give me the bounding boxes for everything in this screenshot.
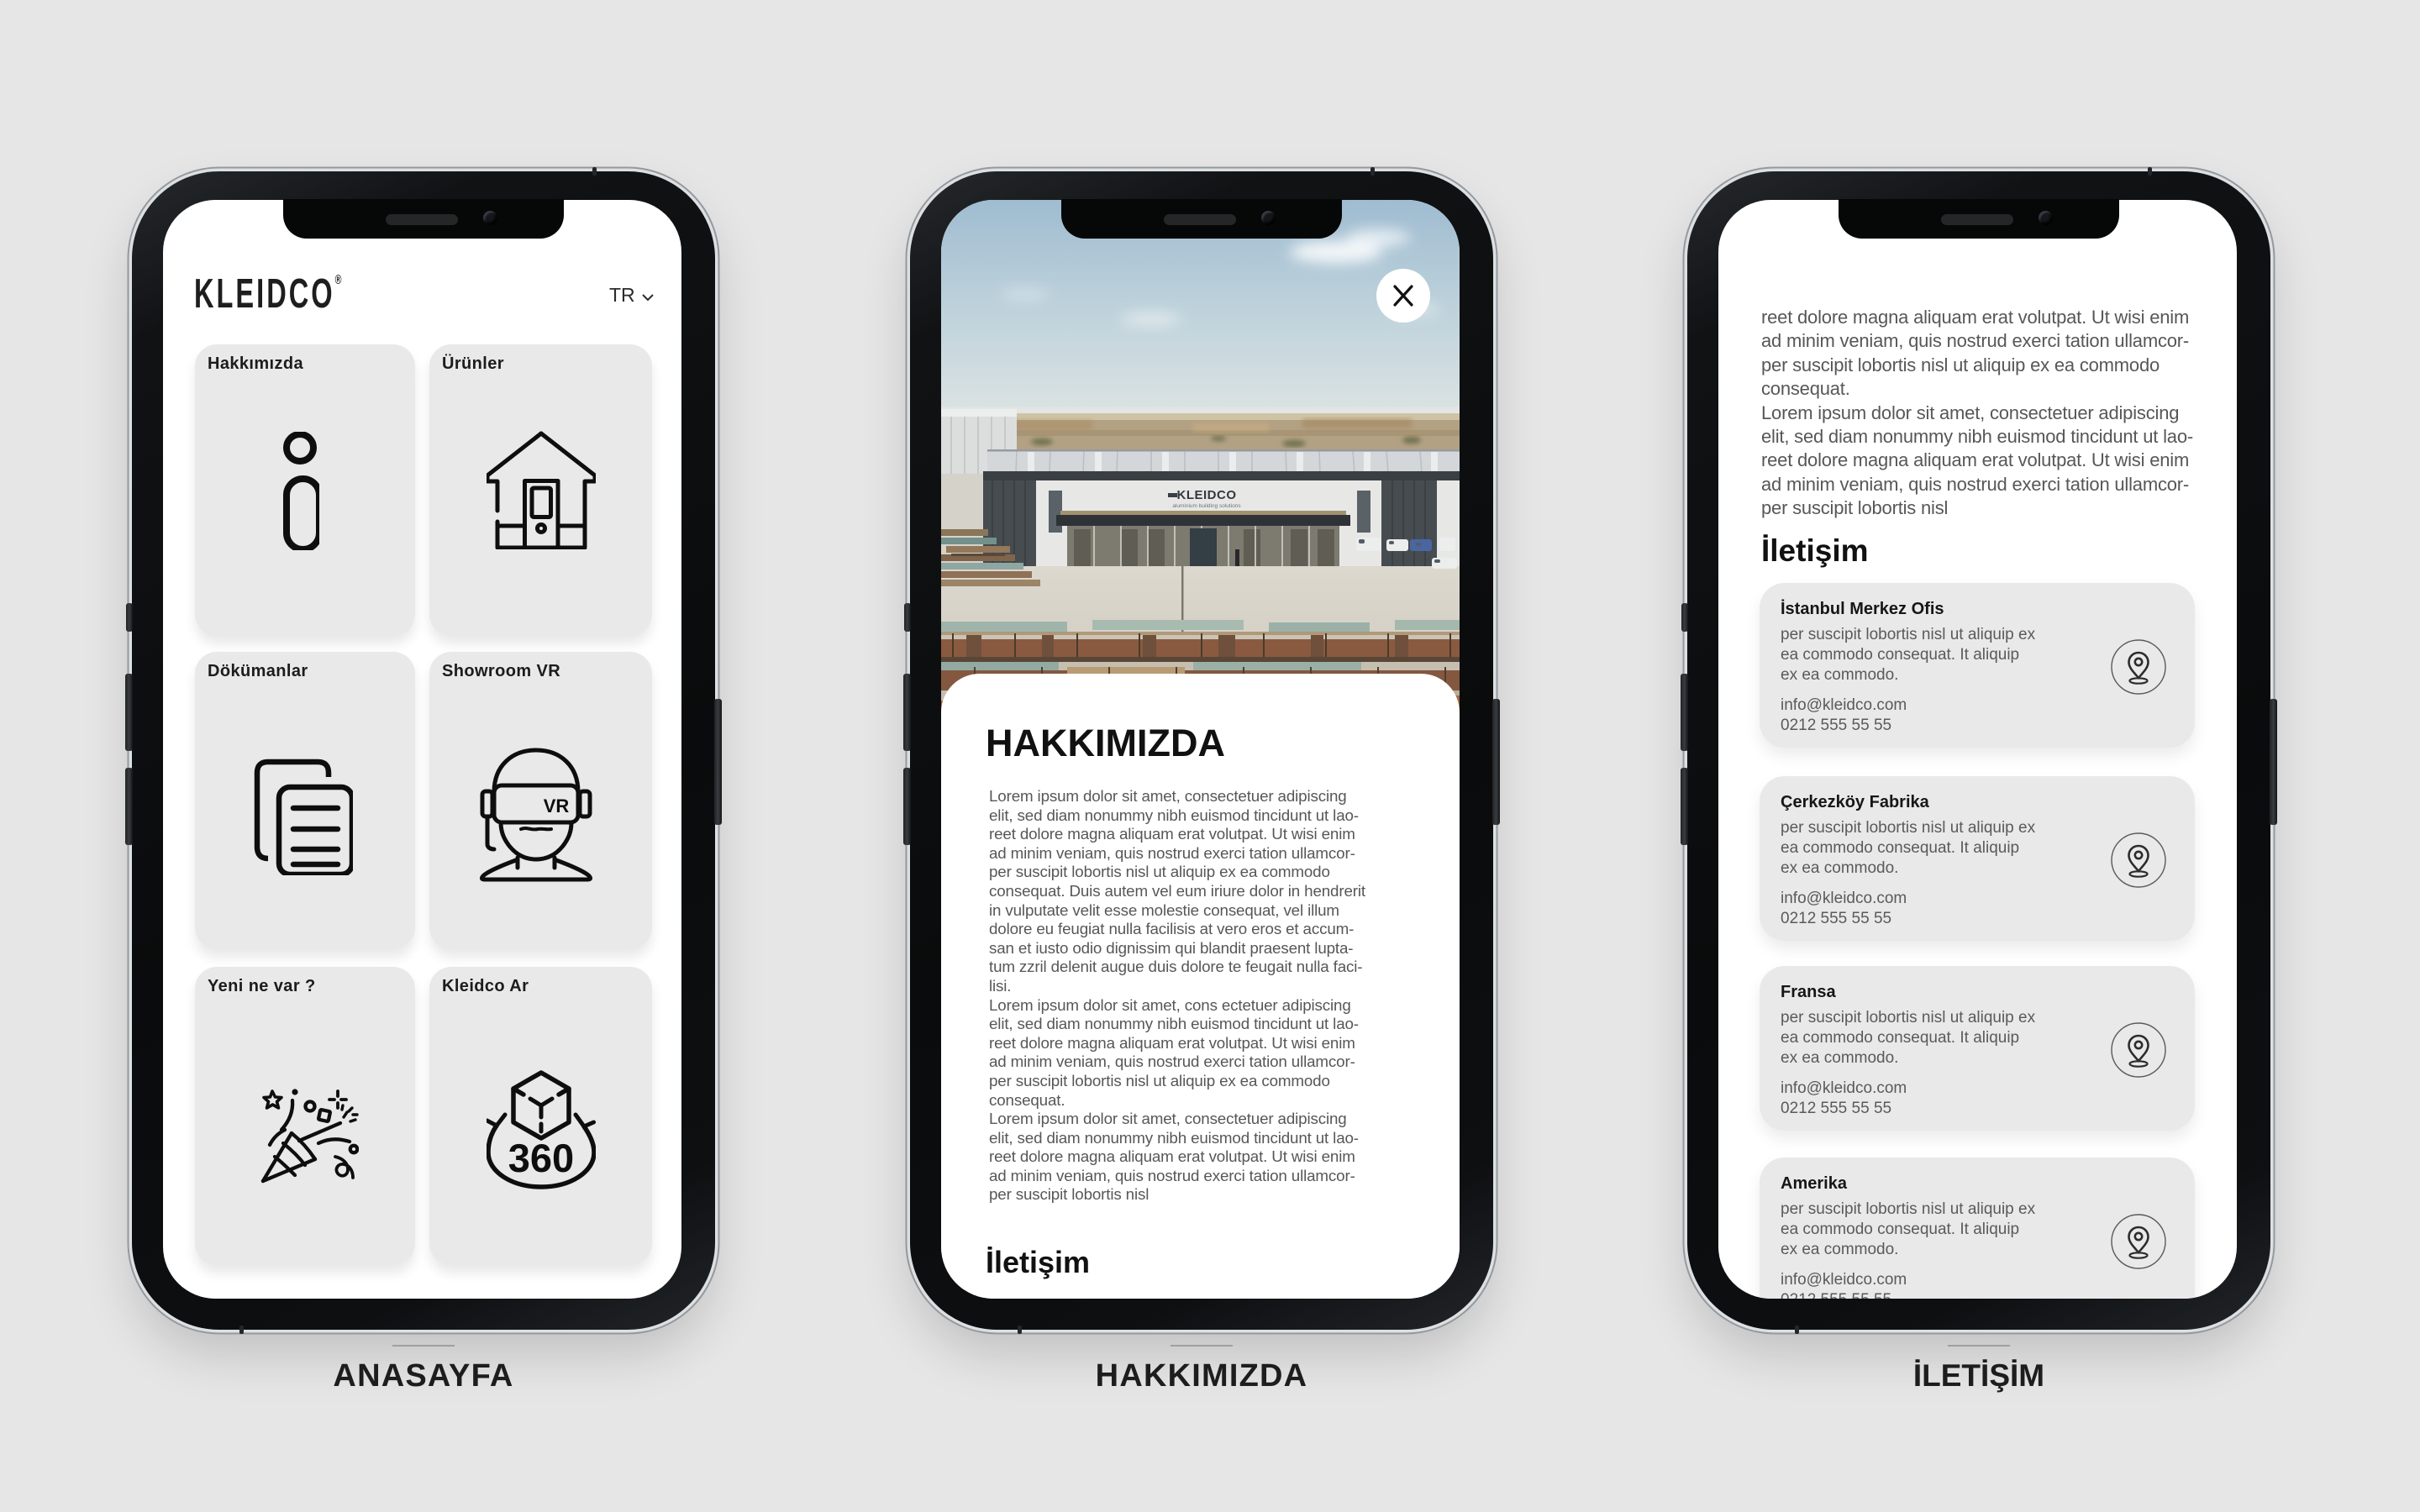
svg-text:aluminium building solutions: aluminium building solutions [1172,503,1241,509]
svg-text:KLEIDCO: KLEIDCO [1177,488,1237,502]
svg-text:360: 360 [508,1136,574,1180]
svg-text:VR: VR [544,795,570,816]
